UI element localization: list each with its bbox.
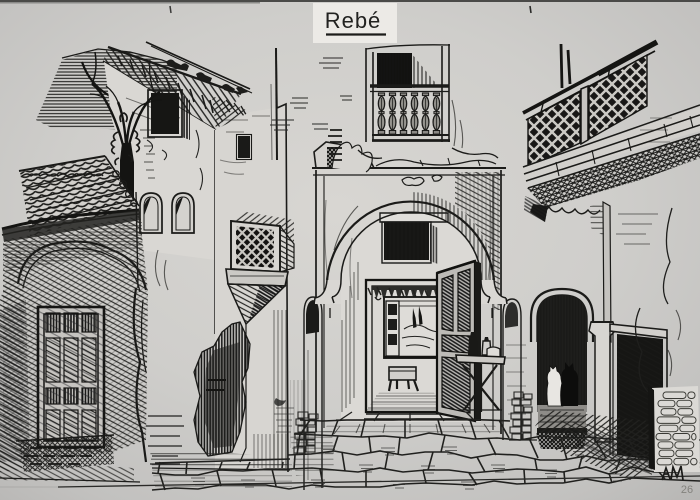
svg-text:26: 26	[681, 484, 693, 496]
svg-text:Rebé: Rebé	[325, 8, 382, 33]
